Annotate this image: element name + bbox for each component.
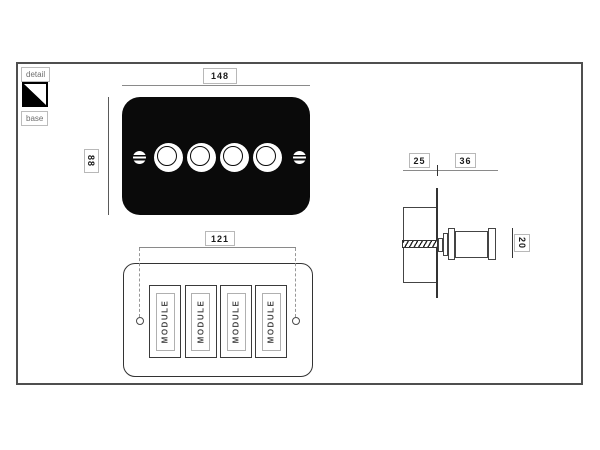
rear-dim-extension-right xyxy=(295,248,296,317)
knob-flange-left-side xyxy=(448,228,455,260)
legend-detail-label: detail xyxy=(21,67,50,82)
module-slot-4: MODULE xyxy=(255,285,287,358)
dimmer-knob-4 xyxy=(253,143,282,172)
rear-dim-extension-left xyxy=(139,248,140,317)
module-slot-3-frame: MODULE xyxy=(227,293,246,351)
dimmer-knob-4-ring xyxy=(256,146,276,166)
height-dimension-value: 88 xyxy=(86,155,96,167)
module-slot-1: MODULE xyxy=(149,285,181,358)
projection-dimension-label: 36 xyxy=(455,153,476,168)
screw-hole-left-icon xyxy=(136,317,144,325)
legend-base-label: base xyxy=(21,111,48,126)
module-2-label: MODULE xyxy=(196,300,205,344)
depth-dimension-tick xyxy=(437,165,438,176)
module-slot-3: MODULE xyxy=(220,285,252,358)
depth-dimension-line xyxy=(403,170,498,171)
height-dimension-label: 88 xyxy=(84,149,99,173)
dimmer-knob-3-ring xyxy=(223,146,243,166)
width-dimension-label: 148 xyxy=(203,68,237,84)
projection-dimension-value: 36 xyxy=(459,156,471,166)
dimmer-knob-2-ring xyxy=(190,146,210,166)
width-dimension-line xyxy=(122,85,310,86)
module-slot-2: MODULE xyxy=(185,285,217,358)
rear-width-dimension-label: 121 xyxy=(205,231,235,246)
dimmer-knob-3 xyxy=(220,143,249,172)
height-dimension-line xyxy=(108,97,109,215)
screw-left-icon xyxy=(133,151,146,164)
module-slot-2-frame: MODULE xyxy=(191,293,210,351)
knob-flange-right-side xyxy=(488,228,496,260)
dimmer-knob-1 xyxy=(154,143,183,172)
module-slot-4-frame: MODULE xyxy=(262,293,281,351)
dimmer-knob-1-ring xyxy=(157,146,177,166)
box-depth-dimension-label: 25 xyxy=(409,153,430,168)
width-dimension-value: 148 xyxy=(211,71,229,81)
module-1-label: MODULE xyxy=(161,300,170,344)
technical-drawing-sheet: detail base 148 88 121 MODULE MODULE MOD… xyxy=(0,0,600,450)
threaded-rod-icon xyxy=(402,240,438,248)
screw-hole-right-icon xyxy=(292,317,300,325)
knob-size-dimension-label: 20 xyxy=(514,234,530,252)
material-swatch-icon xyxy=(22,82,48,107)
knob-body-side xyxy=(455,231,488,258)
rear-width-dimension-line xyxy=(139,247,296,248)
knob-size-dimension-line xyxy=(512,228,513,258)
module-slot-1-frame: MODULE xyxy=(156,293,175,351)
module-3-label: MODULE xyxy=(232,300,241,344)
faceplate-front-view xyxy=(122,97,310,215)
screw-right-icon xyxy=(293,151,306,164)
dimmer-knob-2 xyxy=(187,143,216,172)
knob-size-dimension-value: 20 xyxy=(517,237,527,249)
rear-width-dimension-value: 121 xyxy=(211,234,229,244)
box-depth-dimension-value: 25 xyxy=(413,156,425,166)
module-4-label: MODULE xyxy=(267,300,276,344)
